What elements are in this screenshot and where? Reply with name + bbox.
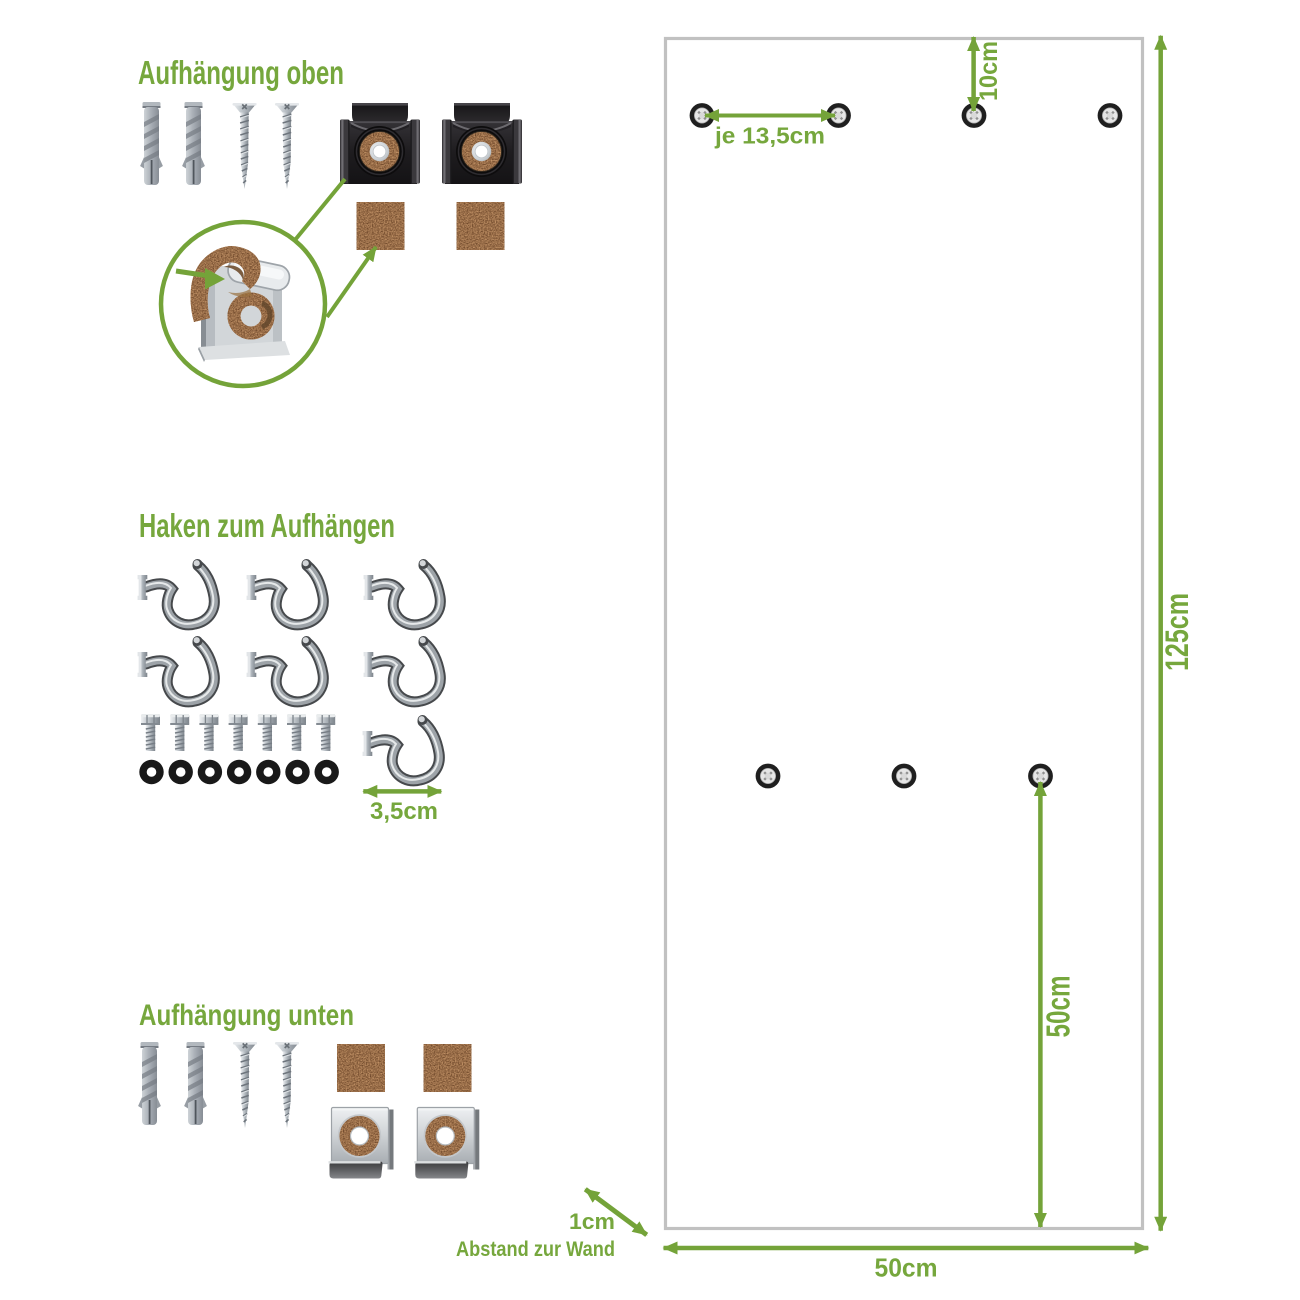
- svg-text:1cm: 1cm: [569, 1209, 615, 1234]
- svg-text:je 13,5cm: je 13,5cm: [714, 123, 825, 149]
- svg-text:Haken zum Aufhängen: Haken zum Aufhängen: [139, 507, 395, 544]
- svg-text:50cm: 50cm: [1041, 976, 1078, 1038]
- svg-text:10cm: 10cm: [975, 41, 1003, 101]
- svg-text:50cm: 50cm: [875, 1253, 938, 1283]
- svg-text:Aufhängung unten: Aufhängung unten: [139, 999, 354, 1032]
- svg-text:Abstand zur Wand: Abstand zur Wand: [456, 1238, 615, 1261]
- svg-text:3,5cm: 3,5cm: [370, 798, 438, 825]
- svg-text:125cm: 125cm: [1159, 593, 1195, 671]
- svg-text:Aufhängung oben: Aufhängung oben: [138, 54, 344, 91]
